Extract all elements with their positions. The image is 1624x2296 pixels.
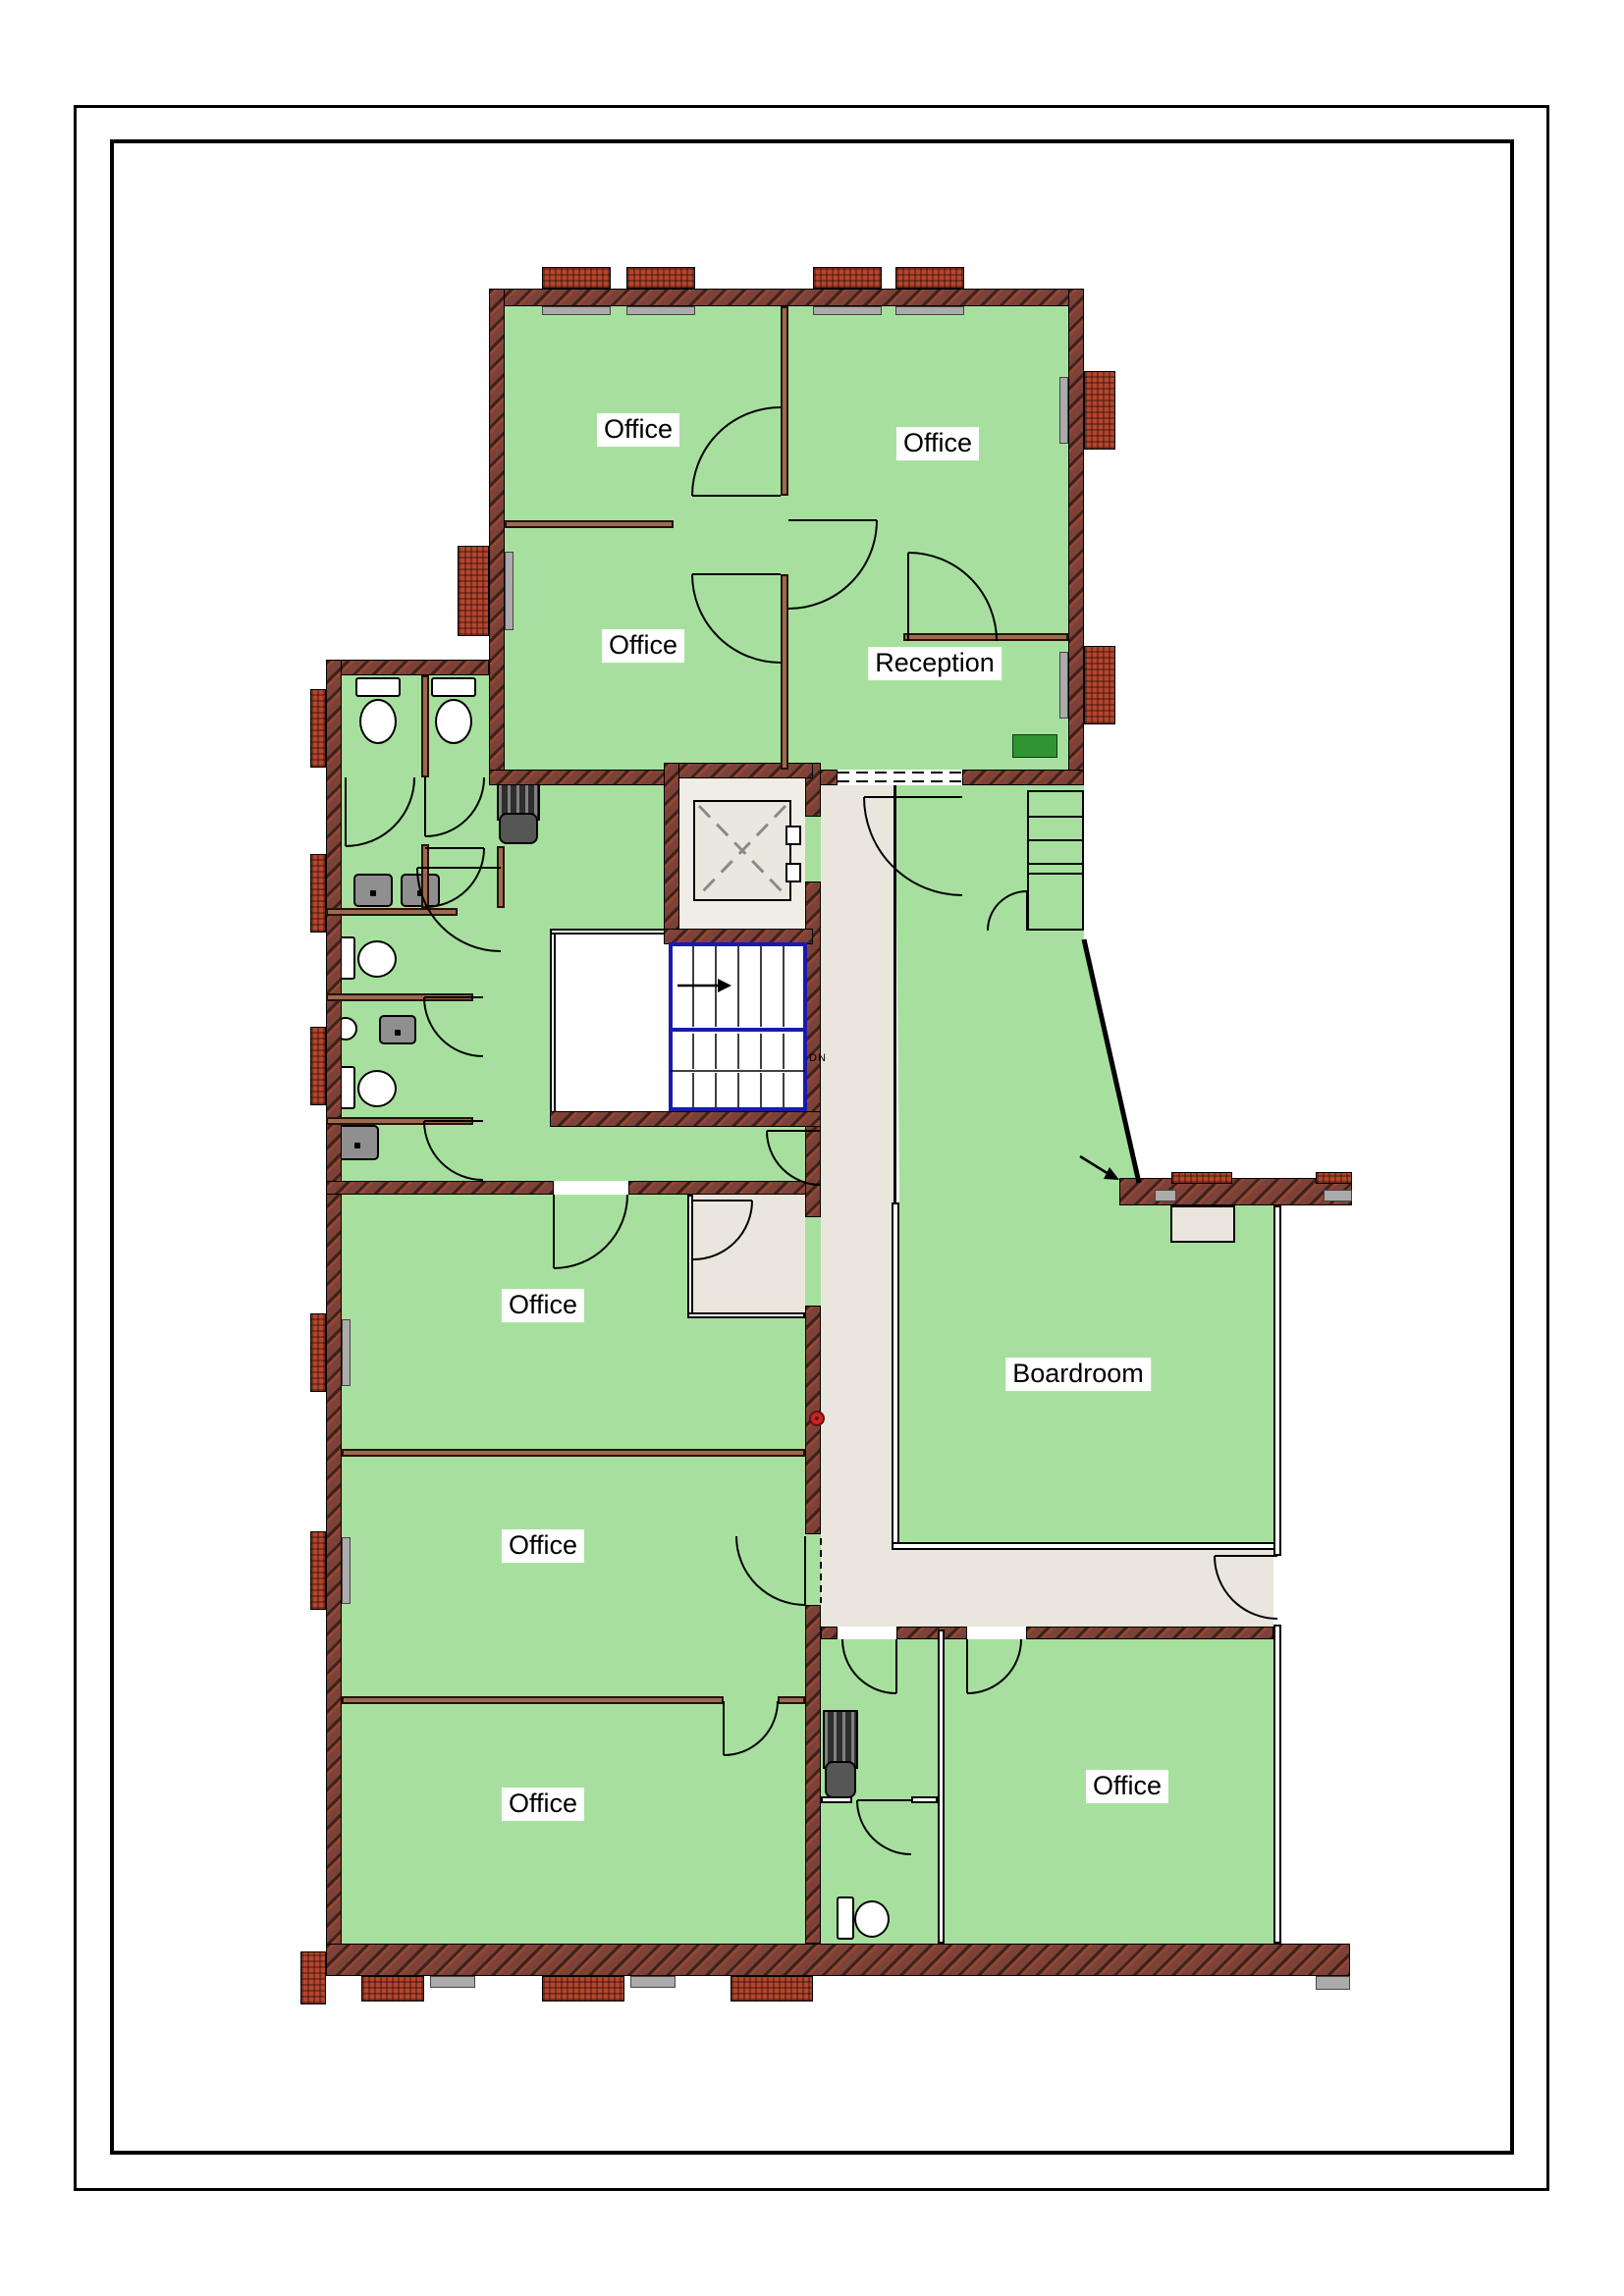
stair-down-label: DN	[809, 1052, 827, 1064]
room-label-office-top-right: Office	[896, 427, 979, 460]
window-sill	[1155, 1190, 1176, 1201]
radiator-icon	[499, 813, 538, 844]
wall	[896, 1627, 967, 1639]
boardroom-wall	[892, 1202, 899, 1549]
window-sill	[342, 1319, 351, 1386]
window-sill	[1059, 377, 1068, 444]
partition-wall	[821, 1796, 852, 1803]
corridor-horizontal	[821, 1550, 1273, 1627]
wall	[550, 1111, 821, 1127]
room-label-boardroom: Boardroom	[1005, 1358, 1151, 1391]
partition-wall	[342, 1449, 805, 1457]
window	[542, 267, 611, 289]
corridor-edge-line	[893, 785, 896, 1205]
toilet-icon	[357, 940, 397, 978]
window	[361, 1976, 424, 2002]
toilet-icon	[854, 1900, 890, 1938]
partition-wall	[505, 520, 674, 528]
wall	[326, 1944, 1350, 1976]
partition-wall	[781, 306, 788, 496]
elevator-shaft-wall	[664, 929, 813, 944]
shelf-line	[1029, 816, 1082, 818]
elevator-shaft-wall	[664, 763, 813, 778]
window-sill	[342, 1537, 351, 1604]
shelf-line	[1029, 839, 1082, 841]
sink-icon	[379, 1015, 416, 1044]
window-sill	[895, 306, 964, 315]
window	[310, 854, 326, 933]
wall	[1068, 289, 1084, 785]
wall	[489, 289, 505, 785]
room-label-office-top-left: Office	[597, 413, 679, 447]
partition-wall	[911, 1796, 938, 1803]
wall	[489, 289, 1084, 306]
room-label-office-left-middle: Office	[502, 1529, 584, 1563]
partition-wall	[687, 1312, 805, 1318]
partition-wall	[687, 1195, 693, 1318]
window	[458, 546, 489, 636]
elevator-car	[693, 800, 791, 901]
toilet-icon	[355, 677, 401, 697]
window-sill	[630, 1976, 676, 1988]
partition-wall	[781, 574, 788, 770]
wall	[821, 1627, 838, 1639]
stairwell-wall	[550, 929, 556, 1117]
elevator-shaft-wall	[664, 763, 679, 944]
stairwell-wall	[550, 929, 670, 934]
wall	[326, 1181, 554, 1195]
window	[813, 267, 882, 289]
wall	[326, 660, 342, 1976]
window-sill	[813, 306, 882, 315]
partition-wall	[778, 1696, 805, 1704]
window-sill	[430, 1976, 475, 1988]
window	[1084, 646, 1115, 724]
window-sill	[505, 552, 514, 630]
partition-wall	[421, 844, 429, 908]
wall	[628, 1181, 821, 1195]
partition-wall	[497, 846, 505, 908]
room-fill-lower-right	[821, 1639, 1273, 1944]
toilet-icon	[431, 677, 476, 697]
window	[626, 267, 695, 289]
wall	[805, 1605, 821, 1944]
wall	[805, 1306, 821, 1534]
sink-icon	[353, 874, 393, 907]
radiator-icon	[823, 1710, 858, 1769]
window-recess	[1170, 1205, 1235, 1243]
room-label-office-middle-left: Office	[602, 629, 684, 663]
window	[731, 1976, 813, 2002]
boardroom-wall	[892, 1542, 1281, 1550]
sink-icon	[336, 1125, 379, 1160]
elevator-door	[785, 863, 801, 882]
window-sill	[1059, 652, 1068, 719]
room-label-reception: Reception	[868, 647, 1001, 680]
room-label-office-left-lower: Office	[502, 1788, 584, 1821]
window-sill	[1316, 1976, 1350, 1990]
partition-wall	[903, 633, 1068, 641]
window	[895, 267, 964, 289]
window-sill	[626, 306, 695, 315]
window	[542, 1976, 624, 2002]
toilet-icon	[837, 1896, 854, 1940]
room-label-office-bottom-right: Office	[1086, 1770, 1168, 1803]
toilet-icon	[435, 699, 472, 744]
stairwell-room	[556, 934, 805, 1111]
toilet-icon	[359, 699, 397, 744]
window-sill	[542, 306, 611, 315]
toilet-icon	[357, 1070, 397, 1107]
window	[310, 689, 326, 768]
shelf-line	[1029, 873, 1082, 875]
wall	[1026, 1627, 1273, 1639]
wall	[326, 660, 489, 675]
radiator-icon	[825, 1761, 856, 1798]
boardroom-wall	[1273, 1625, 1281, 1944]
partition-wall	[326, 993, 473, 1001]
corridor-vertical	[821, 785, 895, 1550]
window	[310, 1531, 326, 1610]
sink-icon	[401, 874, 440, 907]
partition-wall	[326, 908, 458, 916]
room-label-office-left-upper: Office	[502, 1289, 584, 1322]
shelf-line	[1029, 863, 1082, 865]
elevator-door	[785, 826, 801, 845]
drawing-page: Office Office Office Reception Office Of…	[0, 0, 1624, 2296]
window	[1316, 1172, 1352, 1184]
window	[1084, 371, 1115, 450]
partition-wall	[421, 675, 429, 777]
office-entry-alcove	[693, 1195, 805, 1312]
window-sill	[1324, 1190, 1352, 1201]
reception-accent-rect	[1012, 734, 1057, 758]
wall	[962, 770, 1084, 785]
window	[1171, 1172, 1232, 1184]
boardroom-wall	[1273, 1205, 1281, 1556]
partition-wall	[326, 1117, 473, 1125]
window	[310, 1313, 326, 1392]
partition-wall	[938, 1629, 945, 1944]
closet-shelves	[1027, 790, 1084, 931]
window	[300, 1951, 326, 2004]
partition-wall	[342, 1696, 724, 1704]
window	[310, 1027, 326, 1105]
